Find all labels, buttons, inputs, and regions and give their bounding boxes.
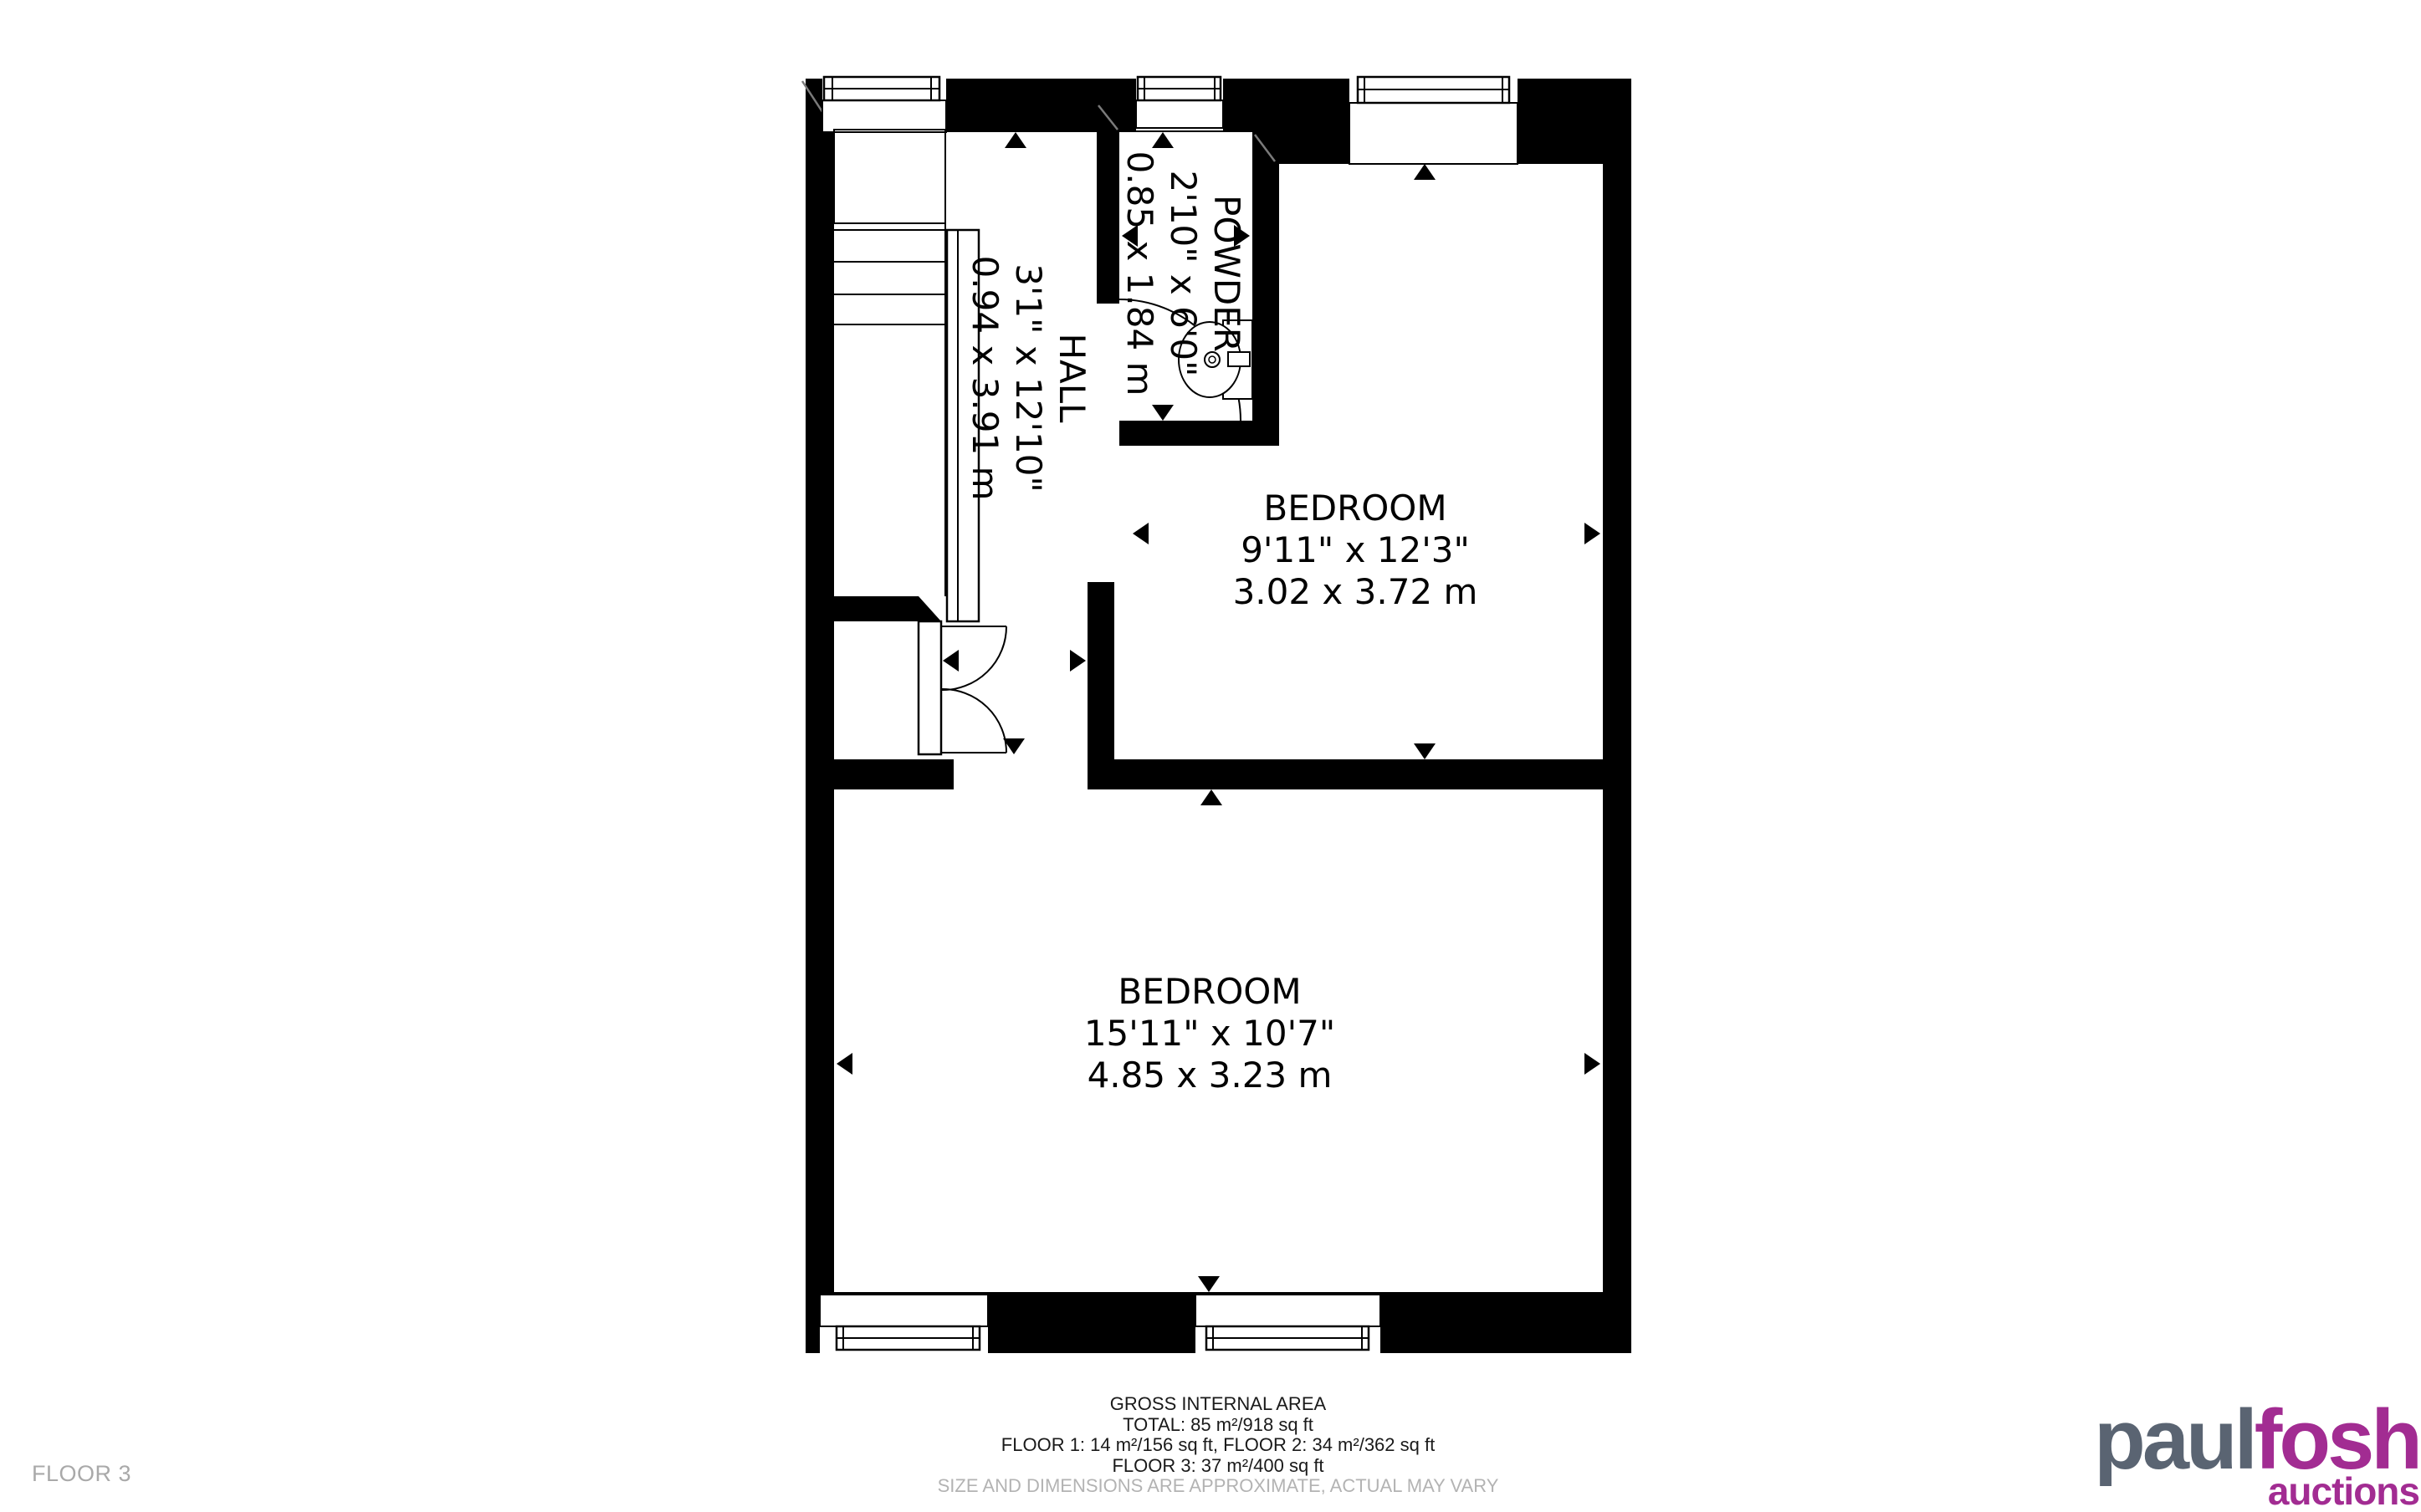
floor-plan: POWDER 2'10" x 6'0" 0.85 x 1.84 m HALL 3… <box>0 0 2421 1512</box>
area-disclaimer: SIZE AND DIMENSIONS ARE APPROXIMATE, ACT… <box>938 1476 1499 1497</box>
room-hall: HALL 3'1" x 12'10" 0.94 x 3.91 m <box>965 256 1093 501</box>
dimension-arrow-left <box>837 1053 852 1075</box>
area-summary-heading: GROSS INTERNAL AREA <box>938 1394 1499 1415</box>
room-bedroom-2: BEDROOM 15'11" x 10'7" 4.85 x 3.23 m <box>1084 971 1335 1096</box>
door-leaf <box>919 621 941 754</box>
dimension-arrow-down <box>1414 743 1436 759</box>
paulfosh-auctions-logo: paulfosh auctions <box>2094 1406 2419 1510</box>
dimension-arrow-left <box>943 650 959 672</box>
wall <box>1088 582 1114 759</box>
window <box>1349 75 1518 164</box>
wall <box>806 759 954 789</box>
floor-label: FLOOR 3 <box>32 1461 131 1487</box>
room-dimensions-imperial: 9'11" x 12'3" <box>1241 529 1470 570</box>
room-dimensions-metric: 0.85 x 1.84 m <box>1119 151 1160 396</box>
dimension-arrow-right <box>1584 1053 1600 1075</box>
room-label: HALL <box>1052 333 1093 423</box>
room-dimensions-metric: 4.85 x 3.23 m <box>1088 1055 1333 1096</box>
wall <box>1088 759 1631 789</box>
room-bedroom-1: BEDROOM 9'11" x 12'3" 3.02 x 3.72 m <box>1233 488 1478 612</box>
wall <box>1097 103 1119 304</box>
stair-landing <box>834 130 945 223</box>
door-swing-double <box>919 621 1006 754</box>
window <box>822 75 946 132</box>
stairs <box>834 130 979 621</box>
wall <box>1603 79 1631 1353</box>
logo-wordmark: paulfosh <box>2094 1406 2419 1475</box>
dimension-arrow-down <box>1198 1276 1220 1292</box>
room-dimensions-imperial: 2'10" x 6'0" <box>1163 171 1204 377</box>
dimension-arrow-up <box>1152 132 1174 148</box>
wall <box>1119 421 1279 446</box>
area-summary: GROSS INTERNAL AREA TOTAL: 85 m²/918 sq … <box>938 1394 1499 1497</box>
dimension-arrow-left <box>1133 523 1149 544</box>
dimension-arrow-up <box>1200 789 1222 805</box>
room-label: BEDROOM <box>1263 488 1446 529</box>
area-floors-1-2: FLOOR 1: 14 m²/156 sq ft, FLOOR 2: 34 m²… <box>938 1435 1499 1456</box>
room-label: BEDROOM <box>1118 971 1301 1012</box>
dimension-arrow-right <box>1070 650 1086 672</box>
wall-angled-end <box>806 596 941 621</box>
area-floor-3: FLOOR 3: 37 m²/400 sq ft <box>938 1456 1499 1477</box>
dimension-arrow-right <box>1584 523 1600 544</box>
room-dimensions-metric: 3.02 x 3.72 m <box>1233 571 1478 612</box>
page: POWDER 2'10" x 6'0" 0.85 x 1.84 m HALL 3… <box>0 0 2421 1512</box>
room-dimensions-imperial: 15'11" x 10'7" <box>1084 1013 1335 1054</box>
room-label: POWDER <box>1206 195 1247 352</box>
dimension-arrow-up <box>1005 132 1026 148</box>
door-arc <box>941 689 1006 753</box>
wall <box>806 79 834 1353</box>
logo-part-paul: paul <box>2094 1393 2255 1487</box>
window <box>1136 75 1223 130</box>
room-dimensions-imperial: 3'1" x 12'10" <box>1008 263 1049 493</box>
room-dimensions-metric: 0.94 x 3.91 m <box>965 256 1006 501</box>
dimension-arrow-up <box>1414 164 1436 180</box>
window <box>1195 1295 1380 1353</box>
area-total: TOTAL: 85 m²/918 sq ft <box>938 1415 1499 1436</box>
window <box>820 1295 988 1353</box>
dimension-arrow-down <box>1152 405 1174 421</box>
wall <box>1252 79 1279 446</box>
